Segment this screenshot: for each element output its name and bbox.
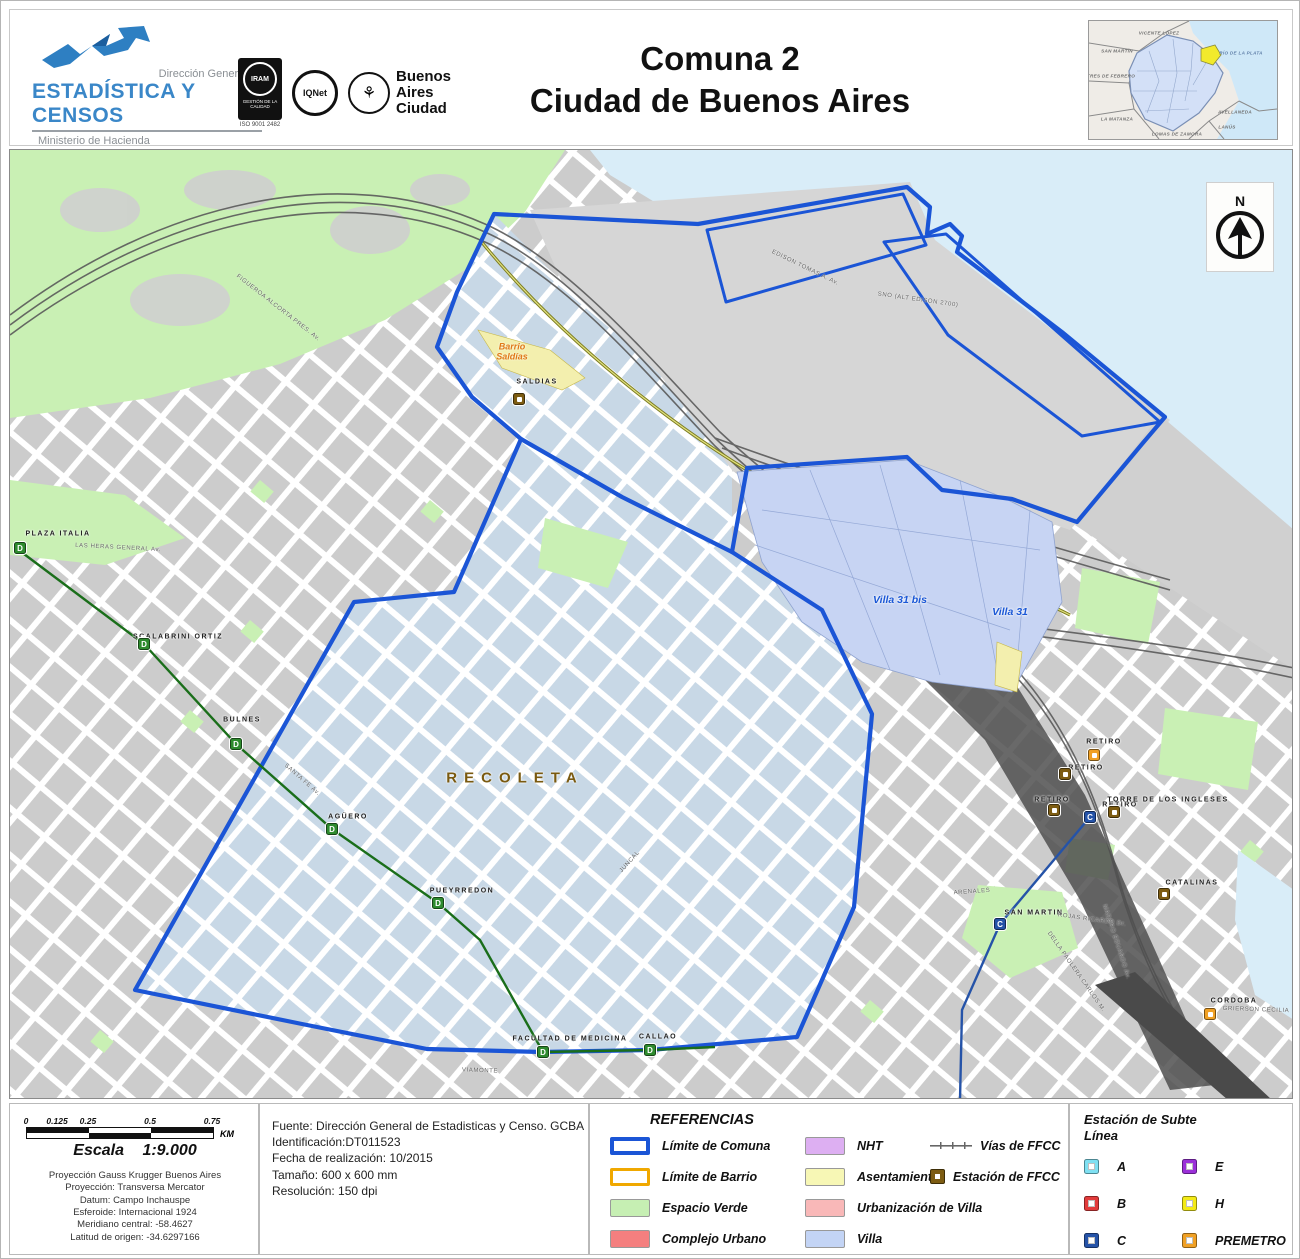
references-title: REFERENCIAS	[650, 1112, 754, 1128]
projection-line: Proyección: Transversa Mercator	[10, 1182, 260, 1194]
subte-line-icon	[1084, 1196, 1099, 1211]
subte-line-label: C	[1117, 1234, 1126, 1248]
legend-swatch	[805, 1137, 845, 1155]
legend-row: Límite de Barrio	[610, 1161, 800, 1192]
scale-bar-segments	[26, 1127, 214, 1139]
projection-line: Esferoide: Internacional 1924	[10, 1207, 260, 1219]
scale-unit: KM	[220, 1129, 234, 1139]
legend-row-vias: Vías de FFCC	[930, 1130, 1065, 1161]
legend-row: Urbanización de Villa	[805, 1192, 970, 1223]
subte-glyph	[1186, 1237, 1193, 1244]
inset-label: VICENTE LÓPEZ	[1139, 31, 1179, 36]
north-arrow-icon	[1214, 209, 1266, 261]
subte-col-a: ABCD	[1084, 1148, 1126, 1259]
iram-circle: IRAM	[243, 62, 277, 96]
scale-tick: 0.25	[80, 1116, 97, 1126]
inset-label: LOMAS DE ZAMORA	[1152, 132, 1202, 137]
map-sheet: Dirección General de ESTADÍSTICA Y CENSO…	[0, 0, 1300, 1259]
inset-label: TRES DE FEBRERO	[1088, 74, 1135, 79]
estacion-label: Estación de FFCC	[953, 1170, 1060, 1184]
subte-panel: Estación de Subte Línea ABCD EHPREMETRO	[1069, 1103, 1293, 1255]
legend-swatch	[610, 1137, 650, 1155]
inset-label: RÍO DE LA PLATA	[1219, 51, 1262, 56]
scale-panel: 00.1250.250.50.75 KM Escala 1:9.000 Proy…	[9, 1103, 259, 1255]
inset-label: AVELLANEDA	[1218, 110, 1252, 115]
title-line2: Ciudad de Buenos Aires	[440, 82, 1000, 120]
scale-tick: 0.75	[204, 1116, 221, 1126]
subte-legend-row: H	[1182, 1185, 1286, 1222]
scale-caption: Escala 1:9.000	[10, 1142, 260, 1160]
subte-title: Estación de Subte Línea	[1084, 1112, 1197, 1145]
scale-tick: 0.5	[144, 1116, 156, 1126]
ffcc-line-swatch	[930, 1141, 972, 1151]
logo-line3: Ministerio de Hacienda	[32, 135, 262, 147]
source-panel: Fuente: Dirección General de Estadistica…	[259, 1103, 589, 1255]
escala-label: Escala	[73, 1142, 124, 1159]
subte-glyph	[1088, 1237, 1095, 1244]
title-line1: Comuna 2	[440, 40, 1000, 78]
scale-bar: 00.1250.250.50.75 KM	[24, 1116, 232, 1139]
legend-swatch	[610, 1168, 650, 1186]
header: Dirección General de ESTADÍSTICA Y CENSO…	[9, 9, 1293, 146]
ba-emblem-icon: ⚘	[348, 72, 390, 114]
scale-ticks: 00.1250.250.50.75	[26, 1116, 212, 1127]
subte-col-b: EHPREMETRO	[1182, 1148, 1286, 1259]
main-map[interactable]: RECOLETAVilla 31 bisVilla 31Barrio Saldí…	[9, 149, 1293, 1099]
source-line: Tamaño: 600 x 600 mm	[272, 1167, 584, 1183]
references-col1: Límite de ComunaLímite de BarrioEspacio …	[610, 1130, 800, 1254]
subte-legend-row: E	[1182, 1148, 1286, 1185]
locator-inset-map: VICENTE LÓPEZSAN MARTÍNTRES DE FEBREROLA…	[1088, 20, 1278, 140]
legend-swatch	[610, 1199, 650, 1217]
logo-line2: ESTADÍSTICA Y CENSOS	[32, 80, 262, 132]
legend-label: Espacio Verde	[662, 1201, 748, 1215]
subte-legend-row: PREMETRO	[1182, 1222, 1286, 1259]
source-line: Resolución: 150 dpi	[272, 1183, 584, 1199]
vias-label: Vías de FFCC	[980, 1139, 1061, 1153]
certification-logos: IRAM GESTIÓN DE LA CALIDAD ISO 9001 2482…	[238, 58, 451, 128]
subte-line-icon	[1182, 1196, 1197, 1211]
ffcc-station-icon	[930, 1169, 945, 1184]
subte-glyph	[1186, 1163, 1193, 1170]
agency-logo: Dirección General de ESTADÍSTICA Y CENSO…	[32, 38, 262, 147]
projection-line: Meridiano central: -58.4627	[10, 1219, 260, 1231]
subte-legend-row: B	[1084, 1185, 1126, 1222]
legend-label: Villa	[857, 1232, 882, 1246]
subte-legend-row: A	[1084, 1148, 1126, 1185]
subte-line-label: E	[1215, 1160, 1223, 1174]
inset-label: LANÚS	[1218, 125, 1235, 130]
legend-row: Espacio Verde	[610, 1192, 800, 1223]
projection-info: Proyección Gauss Krugger Buenos AiresPro…	[10, 1170, 260, 1244]
legend-row: Complejo Urbano	[610, 1223, 800, 1254]
legend-swatch	[805, 1199, 845, 1217]
legend-row: Límite de Comuna	[610, 1130, 800, 1161]
source-info: Fuente: Dirección General de Estadistica…	[272, 1118, 584, 1199]
legend-swatch	[805, 1230, 845, 1248]
subte-glyph	[1088, 1200, 1095, 1207]
inset-label: SAN MARTÍN	[1101, 49, 1133, 54]
iqnet-logo: IQNet	[292, 70, 338, 116]
references-panel: REFERENCIAS Límite de ComunaLímite de Ba…	[589, 1103, 1069, 1255]
legend-swatch	[610, 1230, 650, 1248]
legend-label: Urbanización de Villa	[857, 1201, 982, 1215]
source-line: Fecha de realización: 10/2015	[272, 1150, 584, 1166]
north-arrow: N	[1206, 182, 1274, 272]
subte-line-icon	[1182, 1159, 1197, 1174]
references-col3: Vías de FFCC Estación de FFCC	[930, 1130, 1065, 1192]
subte-line-icon	[1084, 1159, 1099, 1174]
legend-label: Complejo Urbano	[662, 1232, 766, 1246]
subte-glyph	[1088, 1163, 1095, 1170]
iram-logo: IRAM GESTIÓN DE LA CALIDAD	[238, 58, 282, 120]
subte-legend-row: C	[1084, 1222, 1126, 1259]
subte-glyph	[1186, 1200, 1193, 1207]
subte-line-icon	[1182, 1233, 1197, 1248]
legend-swatch	[805, 1168, 845, 1186]
legend-label: Asentamiento	[857, 1170, 940, 1184]
source-line: Fuente: Dirección General de Estadistica…	[272, 1118, 584, 1134]
ba-ciudad-logo: ⚘ Buenos Aires Ciudad	[348, 69, 451, 116]
escala-value: 1:9.000	[142, 1142, 196, 1159]
projection-line: Proyección Gauss Krugger Buenos Aires	[10, 1170, 260, 1182]
legend-row-estacion: Estación de FFCC	[930, 1161, 1065, 1192]
logo-arrow-icon	[40, 24, 190, 70]
inset-label: LA MATANZA	[1101, 117, 1133, 122]
legend-label: Límite de Comuna	[662, 1139, 770, 1153]
projection-line: Latitud de origen: -34.6297166	[10, 1232, 260, 1244]
legend-label: NHT	[857, 1139, 883, 1153]
subte-line-icon	[1084, 1233, 1099, 1248]
subte-line-label: A	[1117, 1160, 1126, 1174]
subte-line-label: PREMETRO	[1215, 1234, 1286, 1248]
north-label: N	[1235, 193, 1245, 209]
projection-line: Datum: Campo Inchauspe	[10, 1195, 260, 1207]
source-line: Identificación:DT011523	[272, 1134, 584, 1150]
iram-code: ISO 9001 2482	[240, 122, 280, 128]
subte-line-label: H	[1215, 1197, 1224, 1211]
legend-label: Límite de Barrio	[662, 1170, 757, 1184]
legend-row: Villa	[805, 1223, 970, 1254]
map-canvas	[10, 150, 1293, 1099]
page-title: Comuna 2 Ciudad de Buenos Aires	[440, 40, 1000, 120]
scale-tick: 0	[24, 1116, 29, 1126]
subte-line-label: B	[1117, 1197, 1126, 1211]
iram-band: GESTIÓN DE LA CALIDAD	[238, 99, 282, 110]
scale-tick: 0.125	[46, 1116, 67, 1126]
